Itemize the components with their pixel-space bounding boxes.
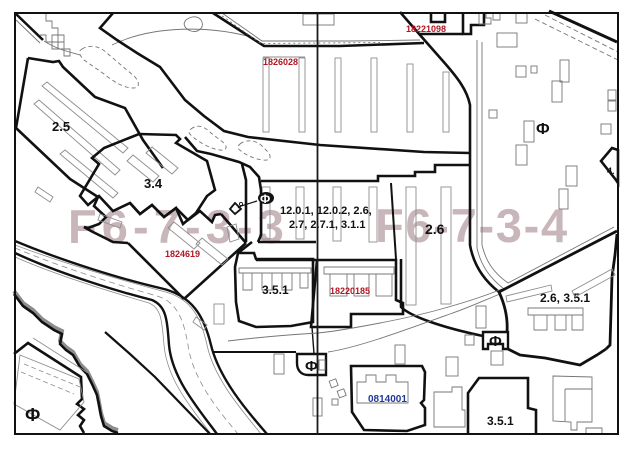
svg-text:0814001: 0814001 <box>368 394 407 405</box>
svg-text:1826028: 1826028 <box>263 57 298 67</box>
svg-text:3.5.1: 3.5.1 <box>487 414 514 428</box>
svg-text:2.7, 2.7.1, 3.1.1: 2.7, 2.7.1, 3.1.1 <box>289 219 365 231</box>
svg-text:F6-7-3-4: F6-7-3-4 <box>375 199 569 252</box>
svg-text:18221098: 18221098 <box>406 24 446 34</box>
svg-text:Ф: Ф <box>536 121 550 138</box>
svg-text:Ф: Ф <box>260 192 270 206</box>
svg-text:2.6: 2.6 <box>425 221 445 237</box>
svg-text:3.4: 3.4 <box>144 176 163 191</box>
svg-text:1824619: 1824619 <box>165 249 200 259</box>
svg-text:F6-7-3-3: F6-7-3-3 <box>68 200 289 253</box>
svg-text:12.0.1, 12.0.2, 2.6,: 12.0.1, 12.0.2, 2.6, <box>280 205 372 217</box>
svg-text:3.5.1: 3.5.1 <box>262 283 289 297</box>
svg-text:4.: 4. <box>607 166 615 176</box>
svg-text:Ф: Ф <box>25 405 40 425</box>
svg-text:2.5: 2.5 <box>52 119 70 134</box>
svg-text:Ф: Ф <box>489 333 502 350</box>
svg-text:18220185: 18220185 <box>330 286 370 296</box>
svg-text:Ф: Ф <box>305 358 318 375</box>
